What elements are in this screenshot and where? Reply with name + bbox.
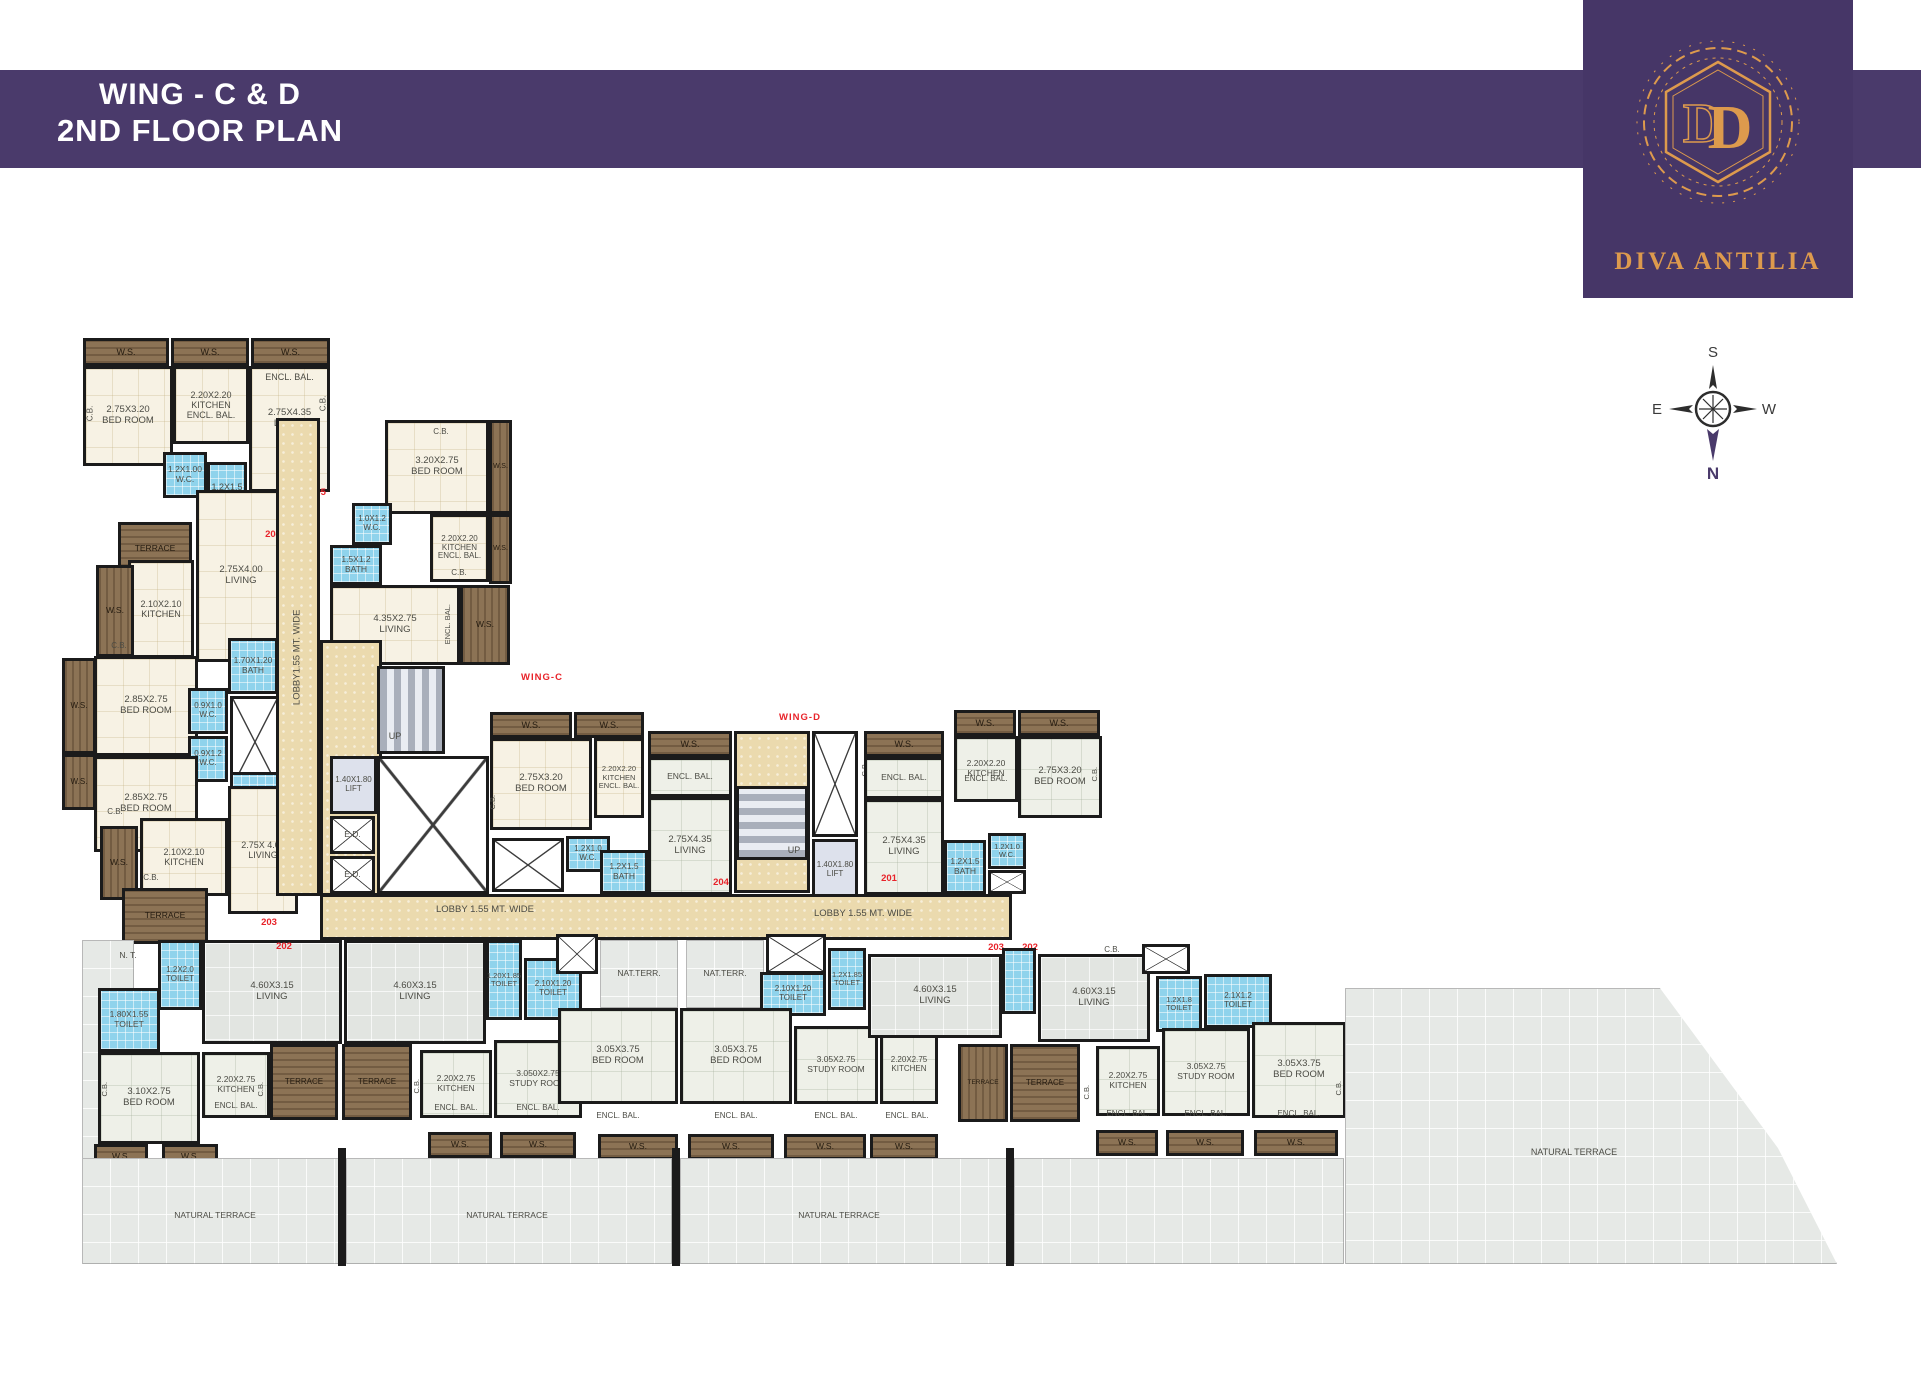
- brand-name: DIVA ANTILIA: [1583, 248, 1853, 276]
- label-encl-bal: ENCL. BAL.: [872, 1110, 942, 1122]
- room-bath-label: 1.2X1.5 BATH: [609, 862, 638, 881]
- ws-strip: W.S.: [648, 731, 732, 757]
- room-kitchen-label: 2.20X2.75 KITCHEN: [217, 1075, 256, 1094]
- label-cb-label: C.B.: [1091, 767, 1099, 782]
- label-natural-terrace: NATURAL TERRACE: [440, 1210, 574, 1222]
- room-bedroom: 3.05X3.75 BED ROOM: [558, 1008, 678, 1104]
- label-cb-label: C.B.: [1083, 1085, 1091, 1100]
- room-toilet: 1.20X1.85 TOILET: [486, 940, 522, 1020]
- label-lobby: LOBBY 1.55 MT. WIDE: [758, 908, 968, 921]
- ws-strip: W.S.: [1096, 1130, 1158, 1156]
- room-terrace-label: TERRACE: [1026, 1079, 1064, 1088]
- room-terrace-label: TERRACE: [358, 1078, 396, 1087]
- room-study-label: 3.05X2.75 STUDY ROOM: [807, 1055, 864, 1074]
- room-terrace: TERRACE: [342, 1044, 412, 1120]
- room-bath-label: 1.70X1.20 BATH: [234, 656, 273, 675]
- label-natural-terrace-label: NATURAL TERRACE: [798, 1211, 880, 1221]
- label-cb: C.B.: [254, 1068, 268, 1110]
- ws-strip-label: W.S.: [110, 858, 128, 868]
- natural-terrace: [1014, 1158, 1344, 1264]
- label-cb: C.B.: [102, 640, 136, 652]
- shaft-duct: [1142, 944, 1190, 974]
- room-living-label: 4.60X3.15 LIVING: [913, 985, 956, 1006]
- room-terrace: TERRACE: [122, 888, 208, 944]
- ws-strip: W.S.: [251, 338, 330, 366]
- room-terrace-label: TERRACE: [285, 1078, 323, 1087]
- room-encl-bal-label: ENCL. BAL.: [881, 773, 927, 783]
- room-kitchen-label: 2.20X2.75 KITCHEN: [1109, 1071, 1148, 1090]
- label-encl-bal-label: ENCL. BAL.: [1277, 1110, 1320, 1119]
- ws-strip-label: W.S.: [493, 545, 508, 553]
- room-wc-label: 1.2X1.0 W.C.: [574, 845, 602, 863]
- ws-strip: W.S.: [954, 710, 1016, 736]
- ws-strip: W.S.: [864, 731, 944, 757]
- label-lobby-label: LOBBY 1.55 MT. WIDE: [436, 905, 534, 916]
- room-ed: E.D.: [330, 856, 375, 894]
- ws-strip: W.S.: [1018, 710, 1100, 736]
- ws-strip: W.S.: [489, 420, 512, 514]
- page-title: WING - C & D 2ND FLOOR PLAN: [0, 78, 400, 148]
- label-encl-bal: ENCL. BAL.: [437, 585, 459, 663]
- label-encl-bal-label: ENCL. BAL.: [214, 1102, 257, 1111]
- room-ed-label: E.D.: [344, 870, 361, 880]
- wing-d-label-label: WING-D: [779, 713, 821, 724]
- room-wc-label: 0.9X1.2 W.C.: [194, 750, 222, 768]
- room-encl-bal-label: ENCL. BAL.: [667, 772, 713, 782]
- room-bedroom-label: 3.05X3.75 BED ROOM: [1273, 1059, 1325, 1080]
- ws-strip-label: W.S.: [451, 1140, 469, 1150]
- ws-strip: W.S.: [171, 338, 249, 366]
- ws-strip: W.S.: [688, 1134, 774, 1160]
- ws-strip: W.S.: [62, 658, 96, 754]
- ws-strip-label: W.S.: [1287, 1138, 1305, 1148]
- room-terrace-label: TERRACE: [967, 1079, 998, 1086]
- unit-number: 203: [254, 916, 284, 930]
- label-lobby: LOBBY 1.55 MT. WIDE: [380, 904, 590, 917]
- room-encl-bal: ENCL. BAL.: [648, 757, 732, 797]
- label-encl-bal: ENCL. BAL.: [566, 1110, 670, 1122]
- label-cb: C.B.: [1088, 752, 1102, 796]
- shaft-duct: [492, 838, 564, 892]
- natural-terrace: NAT.TERR.: [686, 940, 764, 1008]
- unit-number-label: 204: [713, 878, 729, 889]
- compass-west: W: [1762, 401, 1777, 418]
- label-up: UP: [380, 730, 410, 742]
- label-cb-label: C.B.: [320, 395, 329, 411]
- ws-strip-label: W.S.: [116, 347, 135, 357]
- label-cb: C.B.: [1080, 1072, 1094, 1112]
- room-toilet: 2.1X1.2 TOILET: [1204, 974, 1272, 1028]
- ws-strip-label: W.S.: [521, 720, 540, 730]
- room-bedroom-label: 2.75X3.20 BED ROOM: [515, 773, 567, 794]
- room-encl-bal: ENCL. BAL.: [864, 757, 944, 799]
- room-wc-label: 0.9X1.0 W.C.: [194, 702, 222, 720]
- room-wc-label: 1.2X1.0 W.C.: [994, 843, 1020, 860]
- room-kitchen-label: 2.20X2.20 KITCHEN ENCL. BAL.: [187, 390, 236, 420]
- ws-strip-label: W.S.: [629, 1142, 647, 1152]
- label-encl-bal: ENCL. BAL.: [794, 1110, 878, 1122]
- compass-south: S: [1708, 344, 1718, 361]
- lobby-vertical-label: LOBBY1.55 MT. WIDE: [293, 609, 304, 705]
- room-living-label: 2.75X4.35 LIVING: [882, 836, 925, 857]
- ws-strip-label: W.S.: [816, 1142, 834, 1152]
- brand-logo: D D DIVA ANTILIA: [1583, 0, 1853, 298]
- title-floor: 2ND FLOOR PLAN: [0, 113, 400, 149]
- room-terrace-label: TERRACE: [135, 544, 176, 554]
- room-wc: 0.9X1.0 W.C.: [188, 688, 228, 734]
- label-cb-label: C.B.: [107, 808, 123, 817]
- room-toilet-label: 1.2X1.85 TOILET: [832, 971, 862, 988]
- room-terrace: TERRACE: [1010, 1044, 1080, 1122]
- natural-terrace-right: [1345, 988, 1837, 1264]
- room-living-label: 2.75X4.00 LIVING: [219, 565, 262, 586]
- room-lift: 1.40X1.80 LIFT: [330, 756, 377, 814]
- room-living-label: 2.75X4.35 LIVING: [668, 835, 711, 856]
- label-encl-bal-label: ENCL. BAL.: [1184, 1110, 1227, 1119]
- ws-strip-label: W.S.: [71, 778, 88, 787]
- shaft-duct: [766, 934, 826, 974]
- ws-strip-label: W.S.: [1196, 1138, 1214, 1148]
- label-encl-bal-label: ENCL. BAL.: [885, 1112, 928, 1121]
- room-lift-label: 1.40X1.80 LIFT: [817, 861, 853, 879]
- label-cb-label: C.B.: [489, 795, 497, 810]
- room-toilet-label: 2.1X1.2 TOILET: [1224, 992, 1252, 1010]
- label-lobby-label: LOBBY 1.55 MT. WIDE: [814, 909, 912, 920]
- label-cb: C.B.: [134, 872, 168, 884]
- label-cb: C.B.: [410, 1066, 424, 1106]
- room-bedroom-label: 2.75X3.20 BED ROOM: [1034, 766, 1086, 787]
- room-living-label: 4.35X2.75 LIVING: [373, 614, 416, 635]
- label-cb-label: C.B.: [87, 405, 96, 421]
- label-natural-terrace-label: NATURAL TERRACE: [1531, 1147, 1617, 1157]
- label-encl-bal: ENCL. BAL.: [420, 1102, 492, 1114]
- label-encl-bal-label: ENCL. BAL.: [434, 1104, 477, 1113]
- label-encl-bal-label: ENCL. BAL.: [814, 1112, 857, 1121]
- ws-strip-label: W.S.: [476, 620, 494, 630]
- room-living: 4.60X3.15 LIVING: [202, 940, 342, 1044]
- label-up-label: UP: [788, 845, 801, 855]
- ws-strip: W.S.: [784, 1134, 866, 1160]
- room-living-label: 4.60X3.15 LIVING: [393, 981, 436, 1002]
- ws-strip: W.S.: [1254, 1130, 1338, 1156]
- unit-number-label: 202: [276, 942, 292, 953]
- ws-strip: W.S.: [870, 1134, 938, 1160]
- logo-monogram: D: [1708, 94, 1753, 162]
- floor-plan-sheet: WING - C & D 2ND FLOOR PLAN D D DIVA ANT…: [0, 0, 1921, 1387]
- label-cb-label: C.B.: [257, 1082, 265, 1097]
- label-encl-bal: ENCL. BAL.: [1162, 1108, 1250, 1120]
- room-bath: 1.2X1.5 BATH: [600, 850, 648, 894]
- room-toilet-label: 1.2X1.8 TOILET: [1166, 996, 1192, 1013]
- label-cb-label: C.B.: [433, 428, 449, 437]
- label-cb: C.B.: [84, 390, 98, 436]
- unit-number: 202: [270, 941, 298, 954]
- room-toilet-label: 2.10X1.20 TOILET: [775, 985, 811, 1003]
- ws-strip-label: W.S.: [722, 1142, 740, 1152]
- ws-strip: W.S.: [598, 1134, 678, 1160]
- label-cb-label: C.B.: [451, 569, 467, 578]
- ws-strip-label: W.S.: [599, 720, 618, 730]
- wall-divider: [672, 1148, 680, 1266]
- label-encl-bal-label: ENCL. BAL.: [964, 775, 1007, 784]
- ws-strip-label: W.S.: [894, 739, 913, 749]
- label-cb: C.B.: [98, 1068, 112, 1110]
- compass-rose-icon: S E W N: [1643, 341, 1783, 481]
- label-cb-label: C.B.: [143, 874, 159, 883]
- room-living-label: 4.60X3.15 LIVING: [250, 981, 293, 1002]
- room-bath-label: 1.2X1.5 BATH: [950, 857, 979, 876]
- shaft-duct: [556, 934, 598, 974]
- room-bedroom-label: 2.75X3.20 BED ROOM: [102, 405, 154, 426]
- label-natural-terrace: NATURAL TERRACE: [1494, 1146, 1654, 1159]
- room-toilet-label: 1.2X2.0 TOILET: [166, 966, 194, 984]
- room-living: 4.60X3.15 LIVING: [1038, 954, 1150, 1042]
- label-nt: N. T.: [106, 950, 150, 962]
- wall-divider: [1006, 1148, 1014, 1266]
- natural-terrace-label: NAT.TERR.: [703, 969, 746, 979]
- label-natural-terrace: NATURAL TERRACE: [148, 1210, 282, 1222]
- label-cb-label: C.B.: [413, 1079, 421, 1094]
- wing-d-label: WING-D: [754, 706, 846, 730]
- room-terrace: TERRACE: [270, 1044, 338, 1120]
- room-wc-label: 1.0X1.2 W.C.: [358, 515, 386, 533]
- room-toilet: 1.2X1.85 TOILET: [828, 948, 866, 1010]
- label-encl-bal-label: ENCL. BAL.: [265, 372, 314, 382]
- compass-north: N: [1707, 464, 1719, 481]
- shaft-duct: [377, 756, 489, 894]
- room-bedroom: 3.10X2.75 BED ROOM: [98, 1052, 200, 1144]
- room-bedroom-label: 3.20X2.75 BED ROOM: [411, 456, 463, 477]
- label-encl-bal: ENCL. BAL.: [956, 774, 1016, 785]
- ws-strip-label: W.S.: [895, 1142, 913, 1152]
- unit-number: 204: [706, 876, 736, 890]
- label-nt-label: N. T.: [119, 951, 136, 961]
- ws-strip: W.S.: [490, 712, 572, 738]
- room-bedroom: 2.75X3.20 BED ROOM: [490, 738, 592, 830]
- room-living: 4.60X3.15 LIVING: [344, 940, 486, 1044]
- wing-c-label-label: WING-C: [521, 673, 563, 684]
- room-toilet: 1.2X1.8 TOILET: [1156, 976, 1202, 1032]
- room-kitchen: 2.10X2.10 KITCHEN: [128, 560, 194, 658]
- wing-c-label: WING-C: [497, 666, 587, 690]
- shaft-duct: [812, 731, 858, 837]
- room-kitchen-label: 2.10X2.10 KITCHEN: [163, 847, 204, 867]
- room-toilet: 1.2X2.0 TOILET: [158, 940, 202, 1010]
- room-toilet-label: 1.80X1.55 TOILET: [110, 1010, 149, 1029]
- room-bath: 1.5X1.2 BATH: [330, 545, 382, 585]
- label-cb-label: C.B.: [101, 1082, 109, 1097]
- room-bedroom-label: 3.10X2.75 BED ROOM: [123, 1087, 175, 1108]
- ws-strip-label: W.S.: [1049, 718, 1068, 728]
- room-living: 2.75X4.00 LIVING: [196, 490, 286, 662]
- room-bedroom-label: 3.05X3.75 BED ROOM: [710, 1045, 762, 1066]
- room-wc: 1.2X1.0 W.C.: [988, 833, 1026, 869]
- label-encl-bal-label: ENCL. BAL.: [1106, 1110, 1149, 1119]
- room-study: 3.05X2.75 STUDY ROOM: [1162, 1028, 1250, 1116]
- label-cb: C.B.: [416, 426, 466, 438]
- room-bedroom-label: 2.85X2.75 BED ROOM: [120, 695, 172, 716]
- room-lift-label: 1.40X1.80 LIFT: [335, 776, 371, 794]
- title-wing: WING - C & D: [0, 78, 400, 113]
- room-kitchen-label: 2.20X2.75 KITCHEN: [437, 1074, 476, 1093]
- label-cb: C.B.: [434, 568, 484, 579]
- room-lift: 1.40X1.80 LIFT: [812, 839, 858, 901]
- room-terrace: TERRACE: [958, 1044, 1008, 1122]
- room-terrace-label: TERRACE: [145, 911, 186, 921]
- ws-strip: W.S.: [428, 1132, 492, 1158]
- room-ed: E.D.: [330, 816, 375, 854]
- room-kitchen: 2.20X2.20 KITCHEN ENCL. BAL.: [594, 738, 644, 818]
- label-cb-label: C.B.: [111, 642, 127, 651]
- unit-number-label: 203: [261, 918, 277, 929]
- ws-strip-label: W.S.: [493, 463, 508, 471]
- room-living: 4.60X3.15 LIVING: [868, 954, 1002, 1038]
- ws-strip-label: W.S.: [680, 739, 699, 749]
- room-kitchen: 2.20X2.20 KITCHEN ENCL. BAL.: [173, 366, 249, 444]
- room-ed-label: E.D.: [344, 830, 361, 840]
- label-encl-bal: ENCL. BAL.: [686, 1110, 786, 1122]
- room-bath: 1.70X1.20 BATH: [228, 638, 278, 694]
- room-bedroom: 2.85X2.75 BED ROOM: [94, 656, 198, 756]
- room-kitchen: 2.20X2.20 KITCHEN: [954, 736, 1018, 802]
- label-encl-bal-label: ENCL. BAL.: [444, 604, 452, 644]
- label-cb: C.B.: [486, 782, 500, 822]
- room-wc: 1.0X1.2 W.C.: [352, 503, 392, 545]
- room-bath-label: 1.5X1.2 BATH: [341, 555, 370, 574]
- label-encl-bal-label: ENCL. BAL.: [516, 1104, 559, 1113]
- ws-strip-label: W.S.: [71, 702, 88, 711]
- label-up: UP: [780, 844, 808, 856]
- ws-strip: W.S.: [489, 514, 512, 584]
- compass-east: E: [1652, 401, 1662, 418]
- ws-strip: W.S.: [62, 754, 96, 810]
- ws-strip: W.S.: [83, 338, 169, 366]
- room-living-label: 4.60X3.15 LIVING: [1072, 987, 1115, 1008]
- label-natural-terrace-label: NATURAL TERRACE: [174, 1211, 256, 1221]
- room-bedroom: 3.05X3.75 BED ROOM: [680, 1008, 792, 1104]
- label-cb: C.B.: [1332, 1066, 1346, 1110]
- room-toilet-label: 1.20X1.85 TOILET: [487, 972, 521, 989]
- ws-strip-label: W.S.: [1118, 1138, 1136, 1148]
- natural-terrace: NAT.TERR.: [600, 940, 678, 1008]
- label-up-label: UP: [389, 731, 402, 741]
- label-natural-terrace: NATURAL TERRACE: [772, 1210, 906, 1222]
- label-encl-bal-label: ENCL. BAL.: [714, 1112, 757, 1121]
- lobby-vertical: LOBBY1.55 MT. WIDE: [276, 418, 320, 896]
- ws-strip-label: W.S.: [281, 347, 300, 357]
- label-encl-bal-label: ENCL. BAL.: [596, 1112, 639, 1121]
- room-kitchen: 2.20X2.75 KITCHEN: [1096, 1046, 1160, 1116]
- room-kitchen-label: 2.20X2.75 KITCHEN: [891, 1056, 927, 1074]
- ws-strip-label: W.S.: [200, 347, 219, 357]
- ws-strip: W.S.: [500, 1132, 576, 1158]
- natural-terrace-label: NAT.TERR.: [617, 969, 660, 979]
- ws-strip-label: W.S.: [975, 718, 994, 728]
- room-toilet: [1002, 948, 1036, 1014]
- ws-strip: W.S.: [1166, 1130, 1244, 1156]
- room-wc-label: 1.2X1.00 W.C.: [168, 465, 202, 484]
- room-kitchen: 2.10X2.10 KITCHEN: [140, 818, 228, 896]
- wall-divider: [338, 1148, 346, 1266]
- ws-strip-label: W.S.: [106, 606, 124, 616]
- room-bath: 1.2X1.5 BATH: [944, 840, 986, 894]
- room-bedroom-label: 3.05X3.75 BED ROOM: [592, 1045, 644, 1066]
- room-kitchen-label: 2.10X2.10 KITCHEN: [140, 599, 181, 619]
- room-study: 3.05X2.75 STUDY ROOM: [794, 1026, 878, 1104]
- shaft-duct: [988, 870, 1026, 894]
- unit-number-label: 201: [881, 874, 897, 885]
- label-cb-label: C.B.: [1335, 1081, 1343, 1096]
- room-study-label: 3.05X2.75 STUDY ROOM: [1177, 1062, 1234, 1081]
- ws-strip: W.S.: [574, 712, 644, 738]
- ws-strip: W.S.: [460, 585, 510, 665]
- label-cb: C.B.: [98, 806, 132, 818]
- room-toilet: 1.80X1.55 TOILET: [98, 988, 160, 1052]
- room-toilet-label: 2.10X1.20 TOILET: [535, 980, 571, 998]
- ws-strip-label: W.S.: [529, 1140, 547, 1150]
- room-kitchen-label: 2.20X2.20 KITCHEN ENCL. BAL.: [438, 535, 481, 562]
- unit-number: 201: [874, 872, 904, 886]
- label-encl-bal: ENCL. BAL.: [1096, 1108, 1160, 1120]
- label-natural-terrace-label: NATURAL TERRACE: [466, 1211, 548, 1221]
- room-kitchen-label: 2.20X2.20 KITCHEN ENCL. BAL.: [599, 765, 639, 790]
